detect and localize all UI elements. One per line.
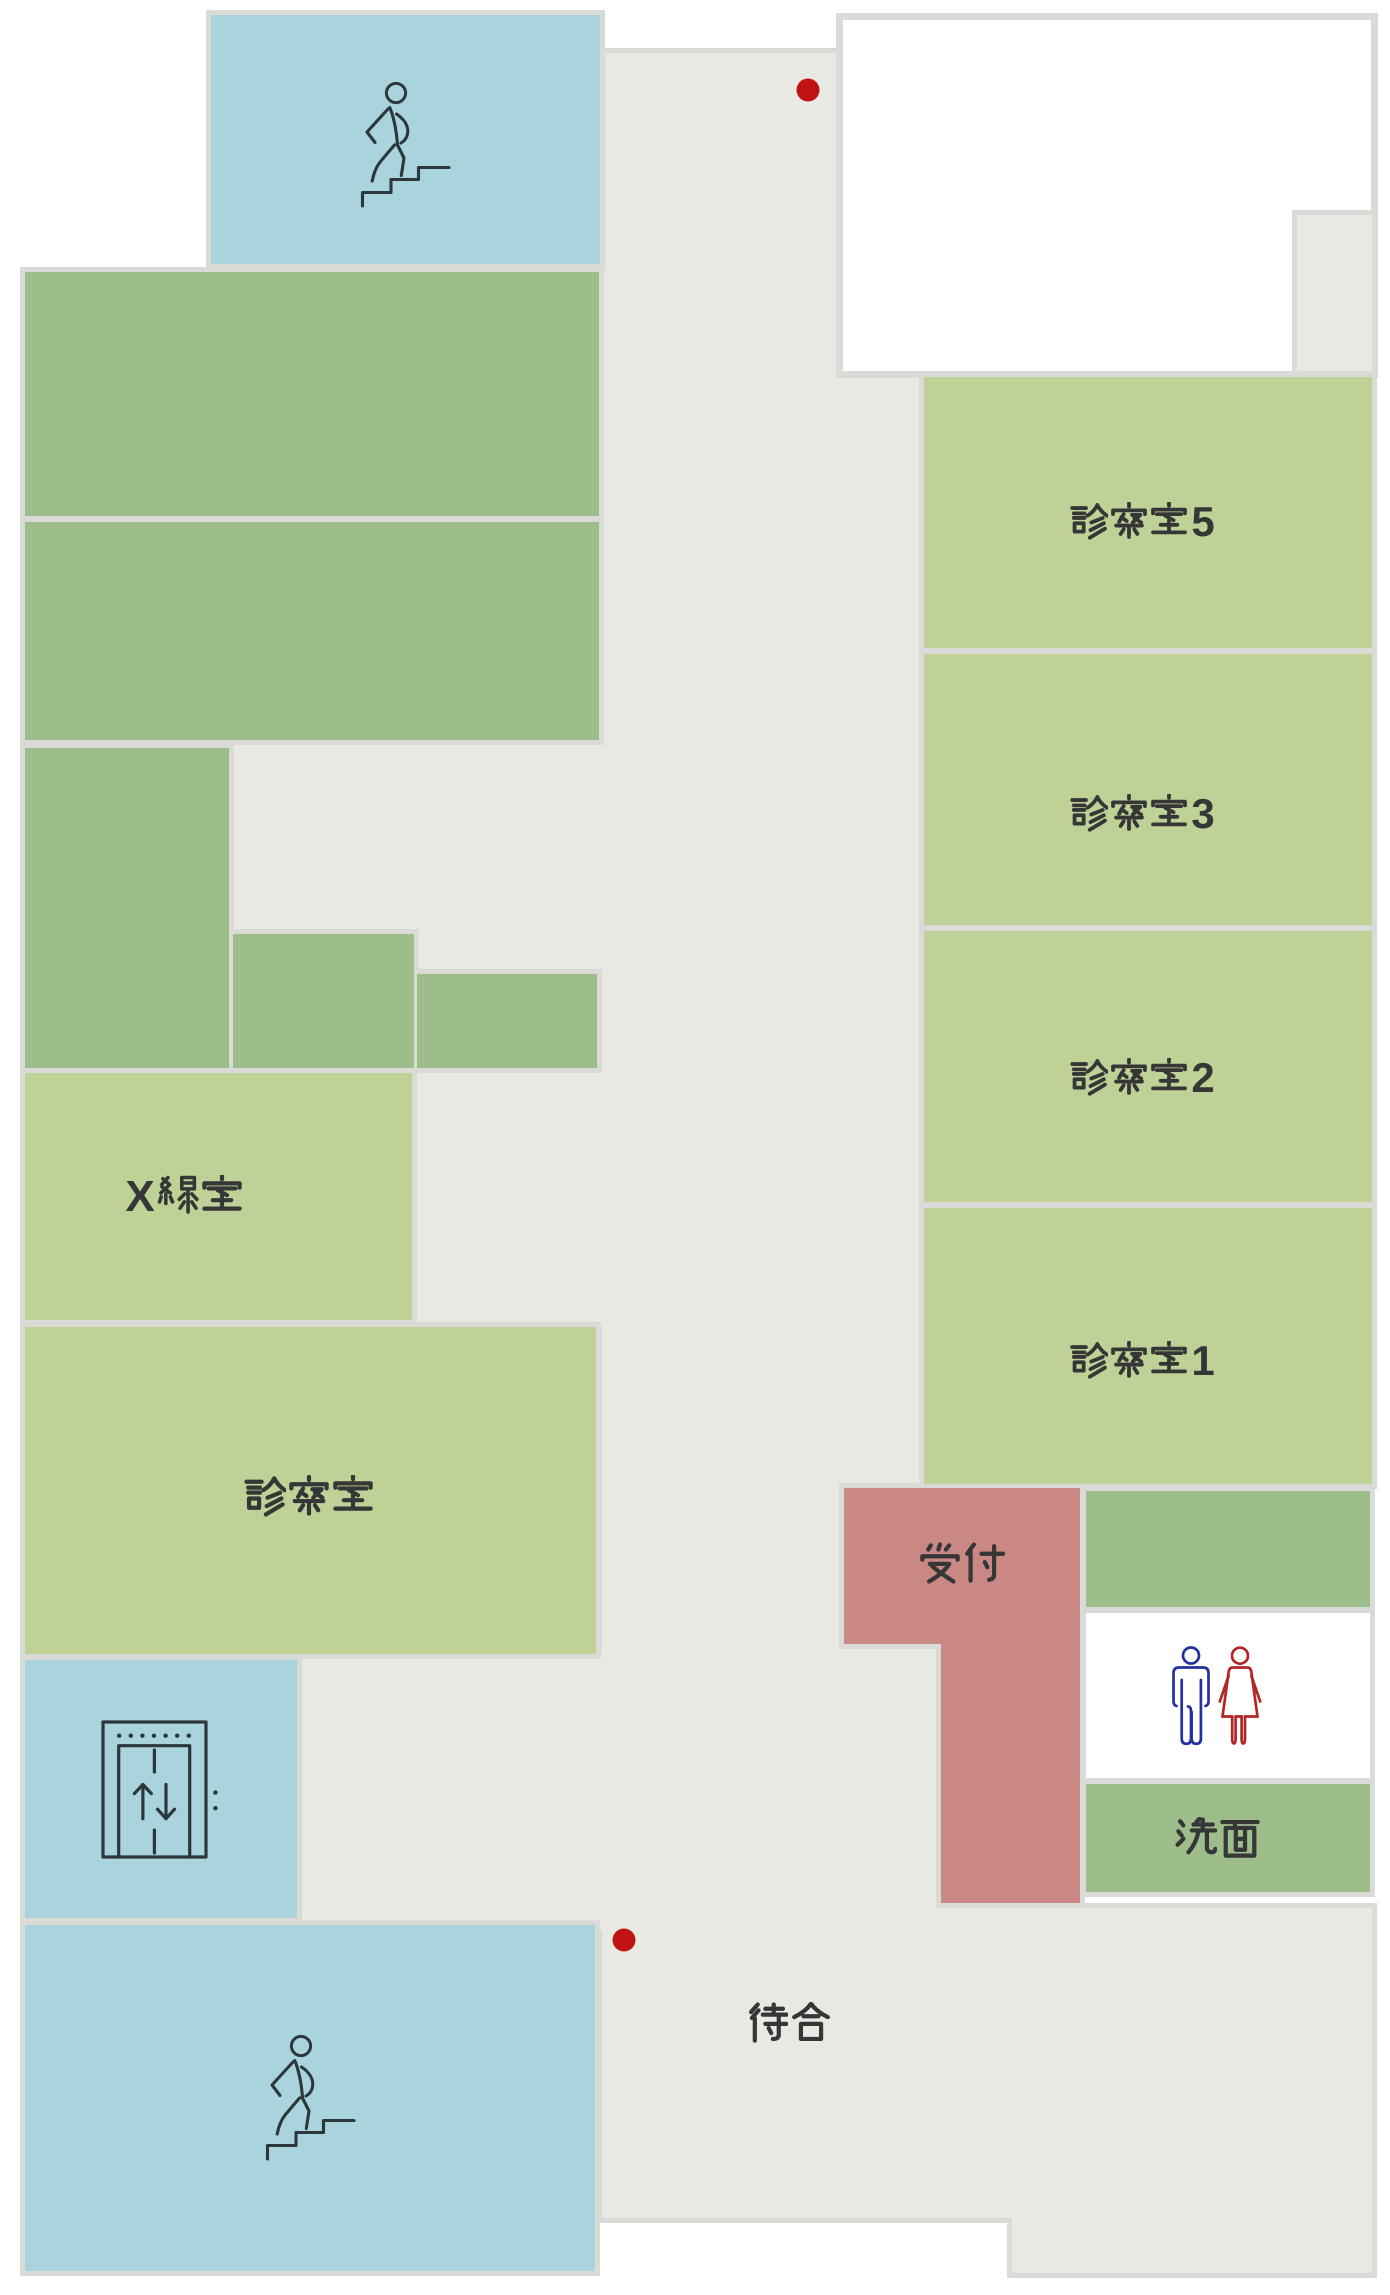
svg-text:5: 5: [1191, 498, 1214, 545]
svg-text:1: 1: [1191, 1337, 1214, 1384]
svg-text:X: X: [125, 1172, 154, 1221]
svg-text:3: 3: [1191, 790, 1214, 837]
svg-text:2: 2: [1191, 1054, 1214, 1101]
